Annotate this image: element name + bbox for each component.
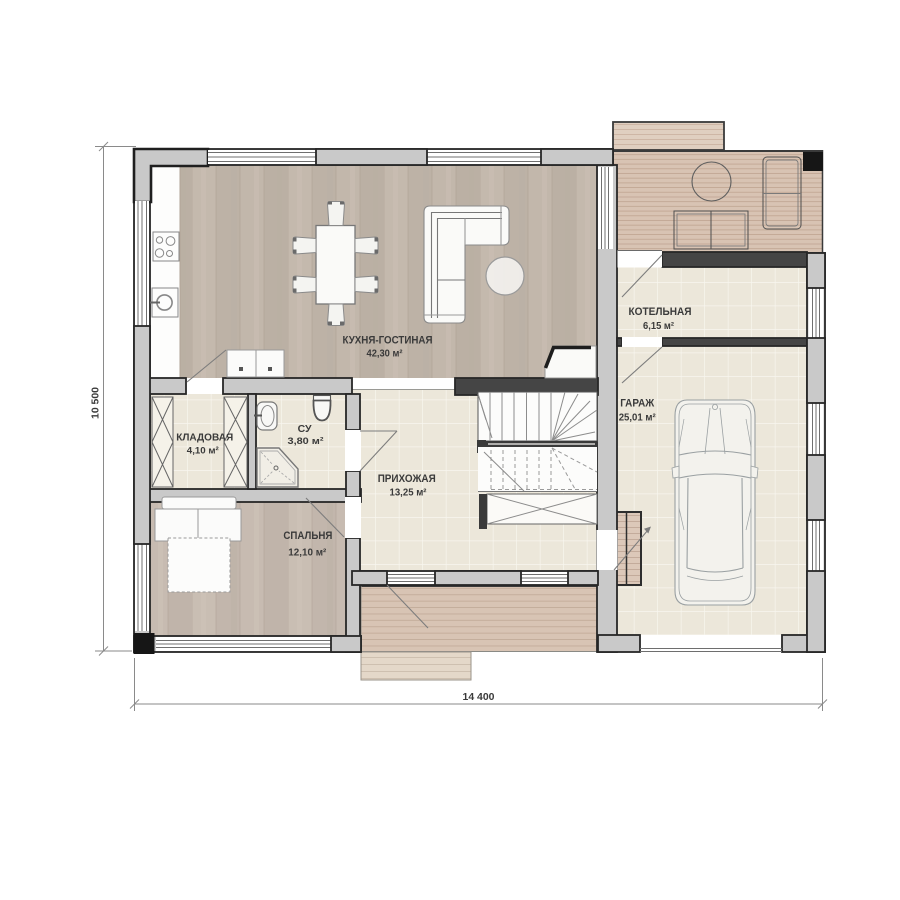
- svg-text:КОТЕЛЬНАЯ: КОТЕЛЬНАЯ: [629, 306, 692, 318]
- svg-text:4,10 м²: 4,10 м²: [187, 446, 219, 457]
- svg-text:12,10 м²: 12,10 м²: [288, 548, 327, 559]
- svg-text:КЛАДОВАЯ: КЛАДОВАЯ: [176, 432, 233, 444]
- svg-text:ПРИХОЖАЯ: ПРИХОЖАЯ: [378, 473, 436, 485]
- svg-text:СПАЛЬНЯ: СПАЛЬНЯ: [283, 530, 332, 542]
- svg-text:14 400: 14 400: [463, 692, 495, 703]
- svg-text:КУХНЯ-ГОСТИНАЯ: КУХНЯ-ГОСТИНАЯ: [343, 335, 433, 347]
- svg-text:СУ: СУ: [298, 423, 312, 435]
- svg-text:13,25 м²: 13,25 м²: [390, 488, 428, 499]
- svg-text:25,01 м²: 25,01 м²: [619, 413, 657, 424]
- svg-text:3,80 м²: 3,80 м²: [288, 436, 324, 447]
- svg-text:42,30 м²: 42,30 м²: [367, 349, 404, 360]
- svg-text:10 500: 10 500: [91, 387, 102, 419]
- svg-text:6,15 м²: 6,15 м²: [643, 321, 675, 332]
- svg-text:ГАРАЖ: ГАРАЖ: [620, 398, 654, 410]
